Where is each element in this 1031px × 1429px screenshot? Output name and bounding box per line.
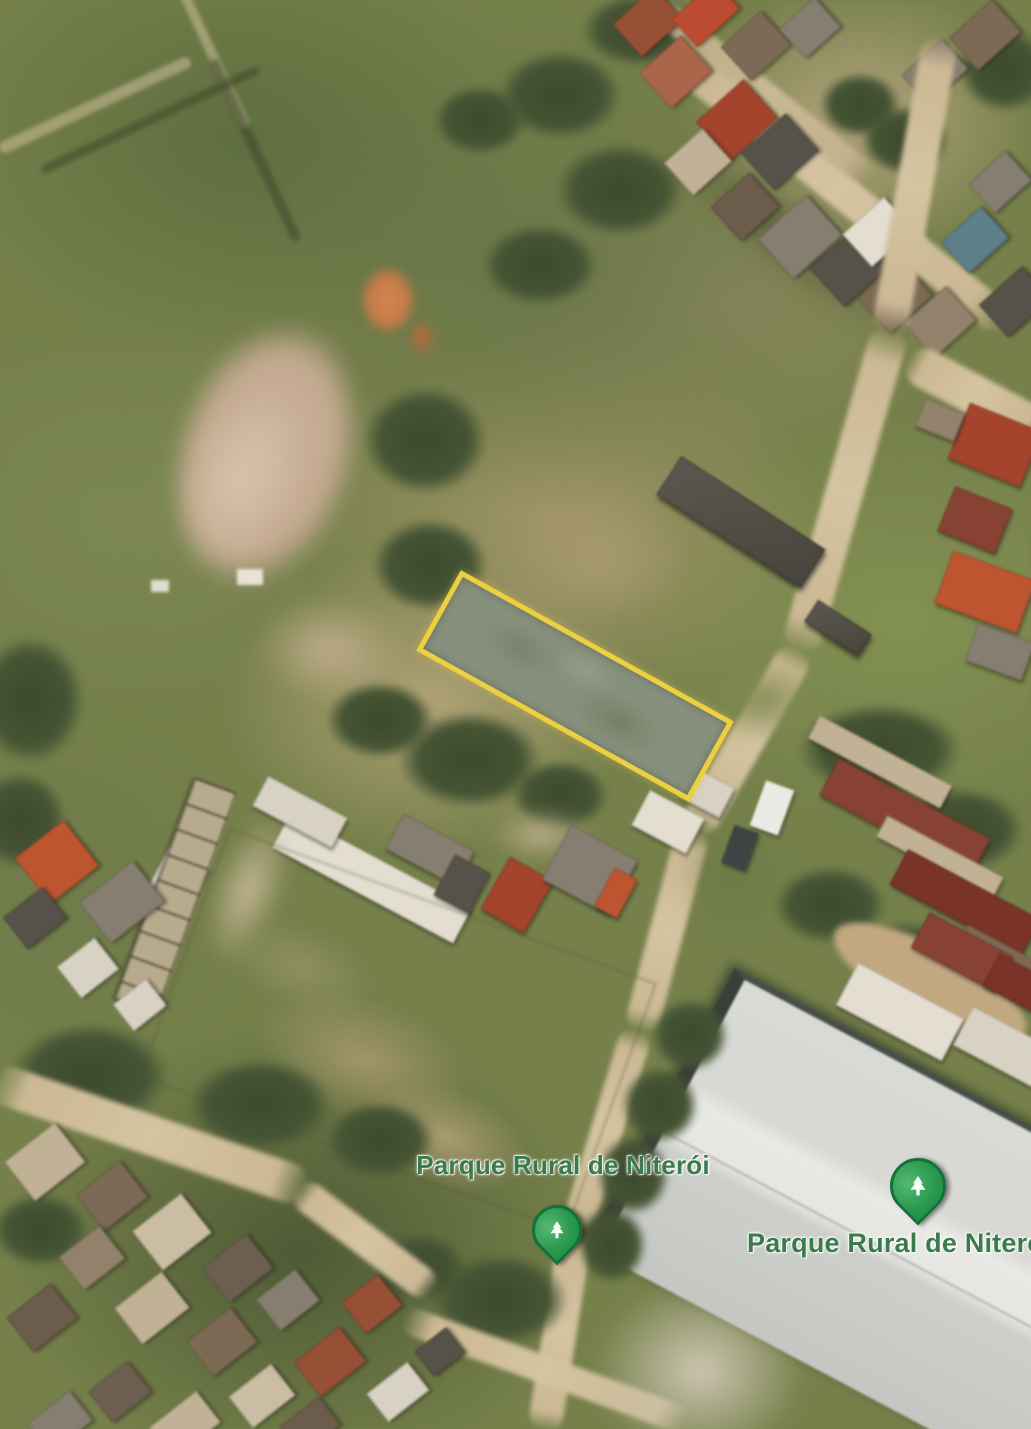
tree-pin-icon [878, 1146, 957, 1225]
satellite-map[interactable]: Parque Rural de Niterói Parque Rural de … [0, 0, 1031, 1429]
park-label-right[interactable]: Parque Rural de Niterói [747, 1228, 1031, 1259]
aerial-terrain [0, 0, 1031, 1429]
tree-glyph [546, 1219, 568, 1241]
small-structure [237, 569, 263, 585]
park-pin-right[interactable] [890, 1158, 946, 1214]
park-pin-left[interactable] [532, 1205, 582, 1255]
tree-cluster [420, 75, 540, 165]
orange-soil-patch [401, 312, 443, 364]
tree-pin-icon [522, 1195, 593, 1266]
tree-glyph [906, 1174, 931, 1199]
small-structure [151, 580, 169, 592]
park-label-left[interactable]: Parque Rural de Niterói [378, 1150, 748, 1181]
tree-cluster [465, 213, 615, 318]
tree-cluster [310, 670, 450, 770]
tree-cluster [345, 370, 505, 510]
